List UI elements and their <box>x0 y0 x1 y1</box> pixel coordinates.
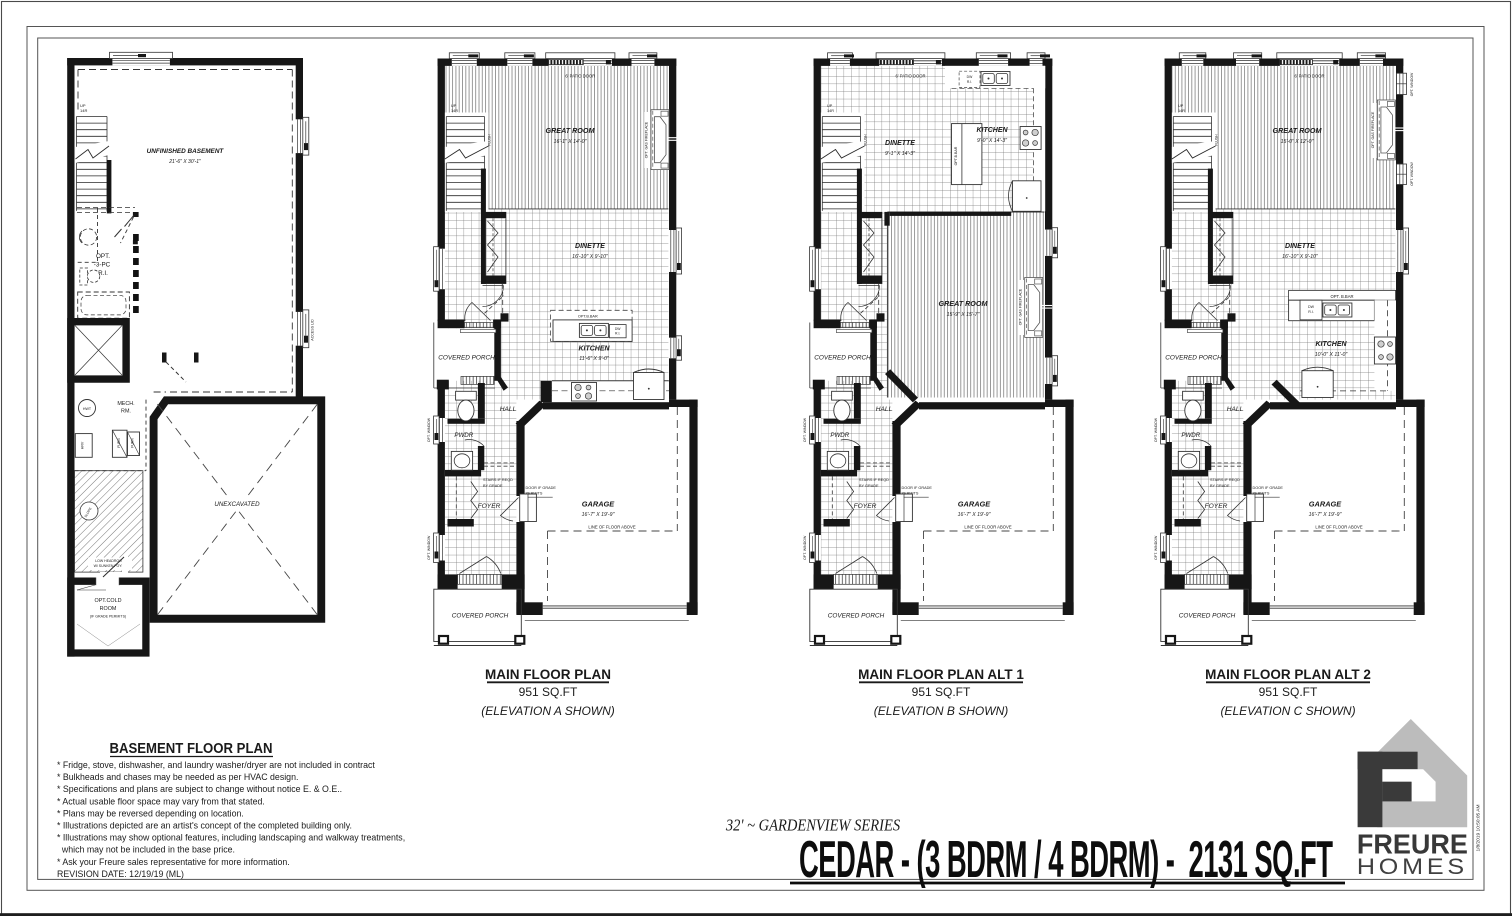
svg-text:HRV: HRV <box>81 441 85 449</box>
svg-text:KITCHEN: KITCHEN <box>1315 341 1347 348</box>
svg-text:OPT.B.BAR: OPT.B.BAR <box>578 314 598 318</box>
svg-text:OPT. GAS FIREPLACE: OPT. GAS FIREPLACE <box>1018 288 1022 325</box>
svg-text:* Specifications and plans are: * Specifications and plans are subject t… <box>57 784 342 794</box>
svg-text:ROOM: ROOM <box>100 606 117 612</box>
svg-text:21'-6" X 30'-1": 21'-6" X 30'-1" <box>168 159 201 165</box>
svg-text:* Bulkheads and chases may be: * Bulkheads and chases may be needed as … <box>57 772 298 782</box>
svg-text:* Actual usable floor space ma: * Actual usable floor space may vary fro… <box>57 796 265 806</box>
svg-text:OPT.COLD: OPT.COLD <box>95 598 122 604</box>
svg-text:-3-PC: -3-PC <box>94 262 111 269</box>
svg-text:DOOR IF GRADE: DOOR IF GRADE <box>526 486 557 490</box>
svg-text:16'-10" X 9'-10": 16'-10" X 9'-10" <box>572 254 609 260</box>
svg-text:ACCESS LID: ACCESS LID <box>311 319 315 341</box>
svg-text:UNFINISHED BASEMENT: UNFINISHED BASEMENT <box>147 148 225 155</box>
svg-text:KITCHEN: KITCHEN <box>578 346 610 353</box>
svg-text:(ELEVATION B SHOWN): (ELEVATION B SHOWN) <box>874 704 1008 718</box>
svg-text:6' PATIO DOOR: 6' PATIO DOOR <box>896 74 926 79</box>
svg-text:R.I.: R.I. <box>615 332 620 336</box>
svg-text:RM.: RM. <box>121 409 131 415</box>
svg-text:R.I.: R.I. <box>967 80 972 84</box>
svg-text:15'-9" X 15'-7": 15'-9" X 15'-7" <box>947 312 981 318</box>
svg-text:OPT.: OPT. <box>96 253 110 260</box>
svg-text:16'-10" X 9'-10": 16'-10" X 9'-10" <box>1282 254 1319 260</box>
svg-text:(ELEVATION C SHOWN): (ELEVATION C SHOWN) <box>1220 704 1355 718</box>
svg-text:which may not be included in t: which may not be included in the base pr… <box>57 845 235 855</box>
svg-text:LINE OF FLOOR ABOVE: LINE OF FLOOR ABOVE <box>588 525 635 530</box>
svg-text:FURN: FURN <box>117 438 121 448</box>
svg-text:MAIN FLOOR PLAN: MAIN FLOOR PLAN <box>485 667 611 682</box>
svg-text:OPT. WINDOW: OPT. WINDOW <box>1410 72 1414 96</box>
svg-text:OPT. WINDOW: OPT. WINDOW <box>427 535 431 560</box>
svg-text:MAIN FLOOR PLAN ALT 1: MAIN FLOOR PLAN ALT 1 <box>858 667 1024 682</box>
svg-text:HOMES: HOMES <box>1357 854 1468 879</box>
svg-text:DINETTE: DINETTE <box>575 243 605 250</box>
svg-text:DW: DW <box>1308 305 1315 309</box>
svg-text:MAIN FLOOR PLAN ALT 2: MAIN FLOOR PLAN ALT 2 <box>1205 667 1371 682</box>
svg-text:9'-1" X 14'-3": 9'-1" X 14'-3" <box>885 151 916 157</box>
svg-text:FLUSH: FLUSH <box>488 134 492 146</box>
svg-text:GREAT ROOM: GREAT ROOM <box>546 126 596 135</box>
svg-text:FOYER: FOYER <box>478 503 501 510</box>
svg-text:UP: UP <box>451 104 457 108</box>
svg-text:951 SQ.FT: 951 SQ.FT <box>912 685 971 699</box>
svg-text:KITCHEN: KITCHEN <box>976 127 1008 134</box>
svg-text:MECH.: MECH. <box>117 401 134 407</box>
svg-text:OPT. B.BAR: OPT. B.BAR <box>1330 294 1353 299</box>
svg-text:9'-0" X 14'-3": 9'-0" X 14'-3" <box>977 138 1008 144</box>
svg-text:* Ask your Freure sales repres: * Ask your Freure sales representative f… <box>57 857 290 867</box>
svg-text:CEDAR - (3 BDRM / 4 BDRM) - 2: CEDAR - (3 BDRM / 4 BDRM) - 2131 SQ.FT <box>799 829 1333 888</box>
svg-text:14R: 14R <box>451 109 458 113</box>
svg-text:(IF GRADE PERMITS): (IF GRADE PERMITS) <box>90 615 126 619</box>
svg-text:15'-0" X 12'-0": 15'-0" X 12'-0" <box>1281 139 1315 145</box>
svg-text:1/8/2019 10:50:05 AM: 1/8/2019 10:50:05 AM <box>1476 805 1482 852</box>
svg-text:DW: DW <box>615 327 621 331</box>
svg-text:* Fridge, stove, dishwasher, a: * Fridge, stove, dishwasher, and laundry… <box>57 760 375 770</box>
svg-text:DINETTE: DINETTE <box>1285 243 1315 250</box>
svg-text:GARAGE: GARAGE <box>582 500 616 509</box>
svg-text:16'-1" X 14'-0": 16'-1" X 14'-0" <box>554 139 588 145</box>
svg-text:14R: 14R <box>80 108 87 113</box>
svg-text:REVISION DATE: 12/19/19 (ML): REVISION DATE: 12/19/19 (ML) <box>57 869 184 879</box>
svg-text:FURN: FURN <box>131 438 135 448</box>
svg-text:OPT. WINDOW: OPT. WINDOW <box>1410 162 1414 186</box>
svg-text:(ELEVATION A SHOWN): (ELEVATION A SHOWN) <box>481 704 615 718</box>
svg-text:COVERED PORCH: COVERED PORCH <box>438 355 495 362</box>
svg-text:GREAT ROOM: GREAT ROOM <box>939 299 989 308</box>
svg-text:UNEXCAVATED: UNEXCAVATED <box>214 501 260 508</box>
svg-text:GREAT ROOM: GREAT ROOM <box>1273 126 1323 135</box>
svg-text:PERMITS: PERMITS <box>526 491 543 495</box>
svg-text:10'-0" X 11'-0": 10'-0" X 11'-0" <box>1315 352 1349 358</box>
svg-text:6' PATIO DOOR: 6' PATIO DOOR <box>1295 74 1325 79</box>
svg-text:951 SQ.FT: 951 SQ.FT <box>1259 685 1318 699</box>
svg-text:OPT. GAS FIREPLACE: OPT. GAS FIREPLACE <box>1371 111 1375 148</box>
svg-text:BASEMENT FLOOR PLAN: BASEMENT FLOOR PLAN <box>110 741 273 757</box>
svg-text:* Illustrations depicted are a: * Illustrations depicted are an artist's… <box>57 821 352 831</box>
svg-text:OPT. WINDOW: OPT. WINDOW <box>427 417 431 442</box>
svg-text:PWDR: PWDR <box>454 432 473 439</box>
svg-text:HALL: HALL <box>500 406 517 413</box>
svg-text:W/ SUNKEN FOYER: W/ SUNKEN FOYER <box>94 564 127 568</box>
svg-text:BY GRADE: BY GRADE <box>483 484 503 488</box>
svg-text:STAIRS IF REQD: STAIRS IF REQD <box>483 478 513 482</box>
svg-text:951 SQ.FT: 951 SQ.FT <box>519 685 578 699</box>
svg-text:R.I.: R.I. <box>1308 310 1314 314</box>
svg-text:DW: DW <box>967 75 973 79</box>
svg-text:HWT: HWT <box>83 407 92 411</box>
svg-text:OPT.B.BAR: OPT.B.BAR <box>954 146 958 165</box>
svg-text:* Illustrations may show optio: * Illustrations may show optional featur… <box>57 833 405 843</box>
svg-text:* Plans may be reversed depend: * Plans may be reversed depending on loc… <box>57 808 244 818</box>
svg-text:DINETTE: DINETTE <box>885 140 915 147</box>
svg-text:COVERED PORCH: COVERED PORCH <box>452 613 509 620</box>
svg-text:6' PATIO DOOR: 6' PATIO DOOR <box>565 74 595 79</box>
svg-text:11'-6" X 9'-0": 11'-6" X 9'-0" <box>579 356 610 362</box>
svg-text:16'-7" X 19'-9": 16'-7" X 19'-9" <box>582 512 616 518</box>
svg-text:OPT. GAS FIREPLACE: OPT. GAS FIREPLACE <box>645 121 649 158</box>
